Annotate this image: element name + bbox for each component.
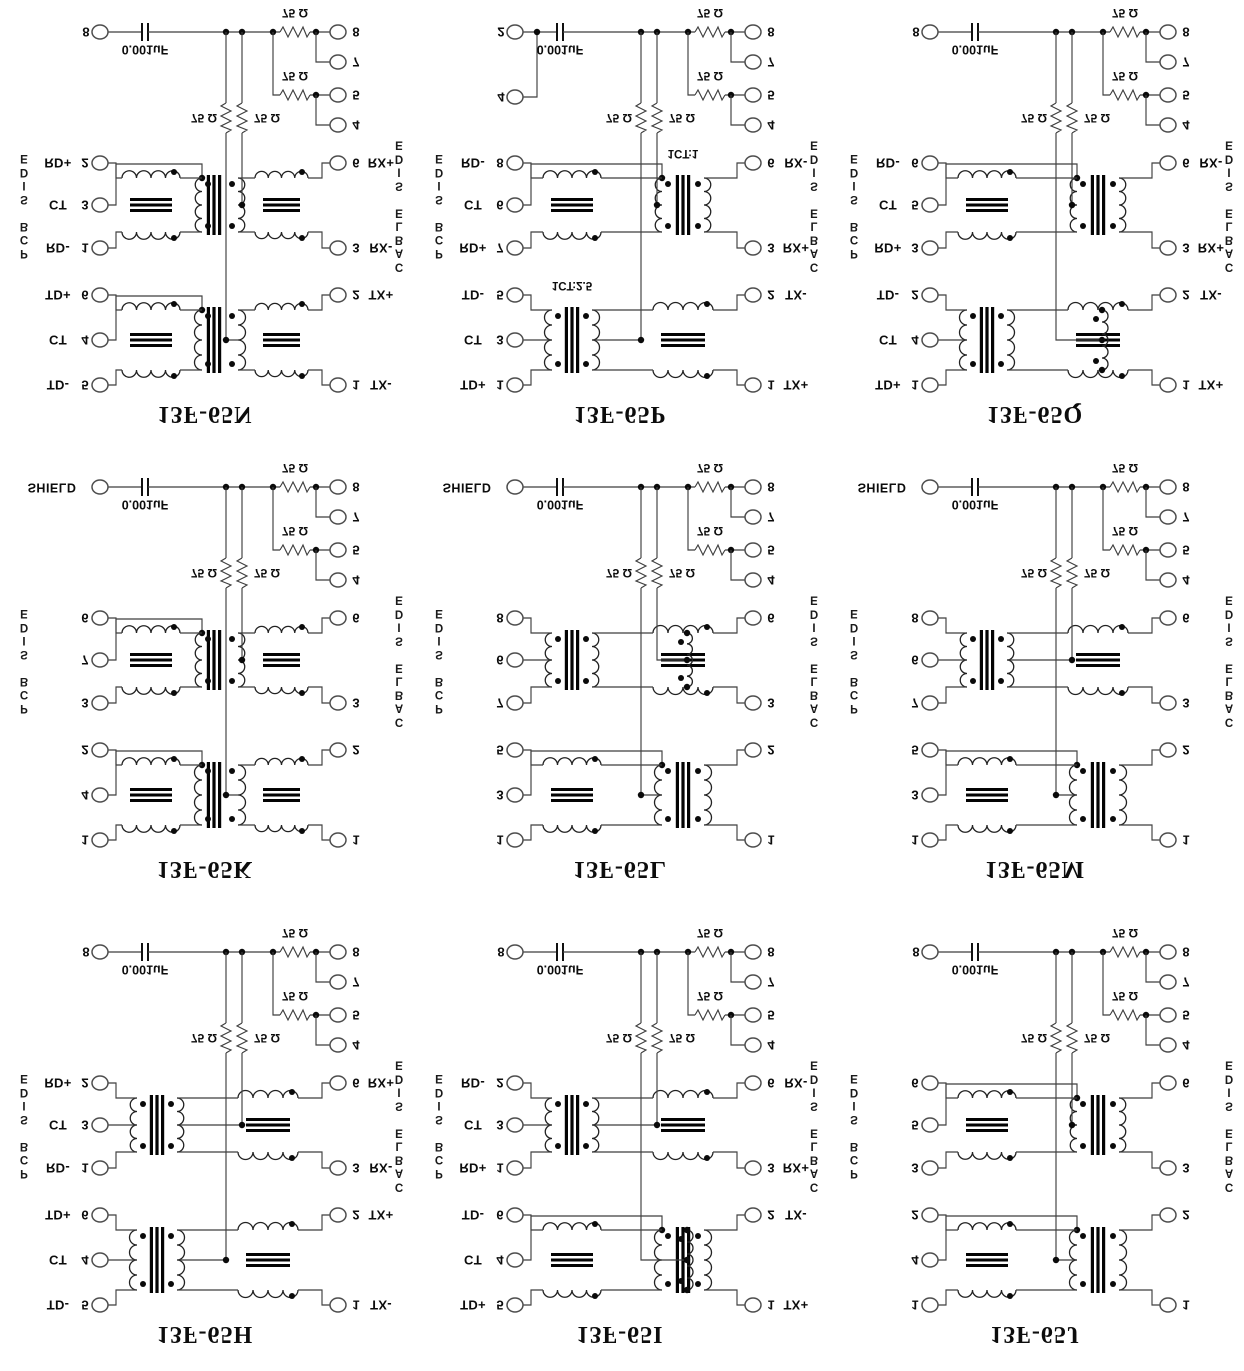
cable-pin-number: 5 bbox=[352, 89, 359, 102]
schematic-cell-13F-65H: 80.001uF75 Ω75 Ω75 Ω75 Ω2RD+3CT1RD-6TD+4… bbox=[0, 920, 415, 1371]
junction-dot bbox=[695, 223, 701, 229]
pcb-pin-label: TD+ bbox=[875, 379, 901, 392]
resistor-value: 75 Ω bbox=[606, 567, 632, 579]
cable-pin-number: 2 bbox=[1182, 289, 1189, 302]
junction-dot bbox=[299, 373, 305, 379]
pin-circle bbox=[922, 156, 938, 170]
pcb-pin-number: 3 bbox=[496, 334, 503, 347]
junction-dot bbox=[534, 29, 540, 35]
pcb-pin-label: RD+ bbox=[44, 1077, 71, 1090]
pin-circle bbox=[92, 743, 108, 757]
cable-side-label: CABLE SIDE bbox=[810, 594, 818, 727]
resistor-value: 75 Ω bbox=[1112, 525, 1138, 537]
cable-pin-number: 8 bbox=[352, 946, 359, 959]
resistor-value: 75 Ω bbox=[1084, 1032, 1110, 1044]
cable-pin-number: 2 bbox=[767, 1209, 774, 1222]
choke-symbol bbox=[238, 1089, 298, 1161]
junction-dot bbox=[1080, 768, 1086, 774]
schematic-cell-13F-65K: SHIELD0.001uF75 Ω75 Ω75 Ω75 Ω67324187546… bbox=[0, 455, 415, 920]
pcb-pin-number: 4 bbox=[81, 789, 88, 802]
cable-pin-number: 3 bbox=[767, 697, 774, 710]
cable-pin-label: TX- bbox=[1200, 289, 1222, 302]
junction-dot bbox=[1080, 1101, 1086, 1107]
pin-circle bbox=[330, 1298, 346, 1312]
junction-dot bbox=[1119, 373, 1125, 379]
pin-circle bbox=[922, 1298, 938, 1312]
pcb-pin-number: 6 bbox=[911, 654, 918, 667]
pcb-pin-label: RD- bbox=[876, 157, 900, 170]
cable-pin-number: 7 bbox=[352, 511, 359, 524]
pin-circle bbox=[1160, 743, 1176, 757]
resistor-value: 75 Ω bbox=[1112, 7, 1138, 19]
pin-circle bbox=[330, 833, 346, 847]
junction-dot bbox=[229, 181, 235, 187]
pcb-pin-number: 3 bbox=[81, 697, 88, 710]
cable-pin-number: 8 bbox=[1182, 946, 1189, 959]
pin-circle bbox=[745, 480, 761, 494]
pin-circle bbox=[1160, 1161, 1176, 1175]
junction-dot bbox=[970, 636, 976, 642]
pin-circle bbox=[1160, 88, 1176, 102]
pin-circle bbox=[1160, 945, 1176, 959]
resistor-value: 75 Ω bbox=[1021, 1032, 1047, 1044]
choke-symbol bbox=[255, 624, 308, 696]
pin-circle bbox=[1160, 696, 1176, 710]
pcb-pin-label: TD+ bbox=[45, 289, 71, 302]
pcb-pin-number: 1 bbox=[81, 242, 88, 255]
resistor-value: 75 Ω bbox=[282, 70, 308, 82]
resistor-symbol bbox=[1110, 1010, 1140, 1020]
pin-circle bbox=[92, 1161, 108, 1175]
pcb-pin-label: CT bbox=[464, 1254, 482, 1267]
cable-pin-number: 6 bbox=[1182, 612, 1189, 625]
pin-circle bbox=[92, 333, 108, 347]
resistor-symbol bbox=[695, 90, 725, 100]
pcb-pin-label: TD- bbox=[462, 289, 485, 302]
pin-circle bbox=[745, 378, 761, 392]
pcb-side-label: PCB SIDE bbox=[435, 1072, 443, 1178]
junction-dot bbox=[555, 361, 561, 367]
junction-dot bbox=[704, 373, 710, 379]
junction-dot bbox=[171, 301, 177, 307]
pin-circle bbox=[330, 241, 346, 255]
pcb-pin-number: 1 bbox=[496, 379, 503, 392]
cable-pin-label: RX+ bbox=[1198, 242, 1225, 255]
junction-dot bbox=[695, 1233, 701, 1239]
junction-dot bbox=[1007, 169, 1013, 175]
pcb-pin-label: RD- bbox=[461, 157, 485, 170]
junction-dot bbox=[684, 1287, 690, 1293]
resistor-value: 75 Ω bbox=[282, 990, 308, 1002]
capacitor-symbol bbox=[972, 943, 978, 961]
junction-dot bbox=[239, 1122, 245, 1128]
pin-circle bbox=[922, 945, 938, 959]
capacitor-symbol bbox=[557, 23, 563, 41]
resistor-symbol bbox=[695, 27, 725, 37]
pcb-side-label: PCB SIDE bbox=[850, 607, 858, 713]
cable-pin-number: 1 bbox=[352, 834, 359, 847]
cable-pin-label: TX- bbox=[785, 289, 807, 302]
pcb-pin-number: 5 bbox=[496, 289, 503, 302]
pin-circle bbox=[92, 1253, 108, 1267]
pcb-pin-number: 3 bbox=[496, 789, 503, 802]
junction-dot bbox=[140, 1281, 146, 1287]
junction-dot bbox=[1053, 1257, 1059, 1263]
pin-circle bbox=[507, 1253, 523, 1267]
resistor-symbol bbox=[280, 482, 310, 492]
pin-circle bbox=[92, 378, 108, 392]
resistor-symbol bbox=[695, 545, 725, 555]
capacitor-value: 0.001uF bbox=[122, 43, 169, 56]
pcb-pin-label: RD- bbox=[46, 242, 70, 255]
cable-pin-number: 8 bbox=[767, 946, 774, 959]
junction-dot bbox=[229, 223, 235, 229]
cable-pin-label: RX+ bbox=[368, 157, 395, 170]
resistor-value: 75 Ω bbox=[697, 927, 723, 939]
cable-pin-number: 6 bbox=[1182, 1077, 1189, 1090]
junction-dot bbox=[555, 1101, 561, 1107]
cable-pin-number: 3 bbox=[1182, 242, 1189, 255]
cable-pin-number: 5 bbox=[1182, 1009, 1189, 1022]
pin-circle bbox=[922, 1118, 938, 1132]
schematic-title: 13F-65N bbox=[158, 402, 253, 426]
cable-pin-number: 6 bbox=[352, 612, 359, 625]
transformer-symbol bbox=[960, 630, 1014, 690]
junction-dot bbox=[684, 684, 690, 690]
choke-symbol bbox=[122, 624, 180, 696]
pin-circle bbox=[1160, 118, 1176, 132]
junction-dot bbox=[998, 361, 1004, 367]
cable-pin-number: 3 bbox=[1182, 697, 1189, 710]
pin-circle bbox=[330, 1008, 346, 1022]
junction-dot bbox=[1007, 1089, 1013, 1095]
junction-dot bbox=[1099, 337, 1105, 343]
resistor-symbol bbox=[1067, 1023, 1077, 1053]
junction-dot bbox=[140, 1233, 146, 1239]
cable-pin-number: 6 bbox=[767, 1077, 774, 1090]
shield-pin-label: 8 bbox=[82, 946, 89, 959]
pcb-pin-number: 5 bbox=[81, 379, 88, 392]
resistor-value: 75 Ω bbox=[697, 990, 723, 1002]
choke-symbol bbox=[238, 1221, 298, 1299]
pin-circle bbox=[92, 1208, 108, 1222]
pin-circle bbox=[330, 543, 346, 557]
schematic-cell-13F-65M: SHIELD0.001uF75 Ω75 Ω75 Ω75 Ω86753187546… bbox=[830, 455, 1244, 920]
cable-pin-number: 5 bbox=[767, 89, 774, 102]
pin-circle bbox=[745, 88, 761, 102]
cable-pin-number: 8 bbox=[767, 26, 774, 39]
transformer-symbol bbox=[195, 630, 245, 690]
cable-pin-number: 7 bbox=[352, 976, 359, 989]
pcb-pin-label: TD- bbox=[47, 379, 70, 392]
junction-dot bbox=[171, 169, 177, 175]
pcb-pin-label: RD+ bbox=[459, 242, 486, 255]
capacitor-value: 0.001uF bbox=[537, 963, 584, 976]
choke-symbol bbox=[958, 756, 1016, 834]
pin-circle bbox=[507, 1076, 523, 1090]
junction-dot bbox=[1007, 1155, 1013, 1161]
transformer-symbol bbox=[545, 307, 600, 373]
capacitor-symbol bbox=[557, 478, 563, 496]
pin-circle bbox=[922, 480, 938, 494]
pin-circle bbox=[330, 510, 346, 524]
resistor-symbol bbox=[237, 103, 247, 133]
junction-dot bbox=[223, 1257, 229, 1263]
cable-pin-number: 3 bbox=[1182, 1162, 1189, 1175]
resistor-symbol bbox=[636, 1023, 646, 1053]
cable-pin-number: 7 bbox=[1182, 976, 1189, 989]
schematic-title: 13F-65Q bbox=[987, 402, 1083, 426]
pin-circle bbox=[92, 611, 108, 625]
transformer-symbol bbox=[1070, 1227, 1127, 1293]
junction-dot bbox=[583, 636, 589, 642]
junction-dot bbox=[1093, 358, 1099, 364]
pcb-pin-number: 1 bbox=[911, 1299, 918, 1312]
pcb-side-label: PCB SIDE bbox=[20, 1072, 28, 1178]
junction-dot bbox=[205, 313, 211, 319]
cable-pin-label: TX- bbox=[370, 379, 392, 392]
resistor-value: 75 Ω bbox=[1112, 990, 1138, 1002]
pin-circle bbox=[745, 1076, 761, 1090]
pin-circle bbox=[507, 288, 523, 302]
resistor-value: 75 Ω bbox=[606, 112, 632, 124]
pin-circle bbox=[922, 1161, 938, 1175]
cable-pin-label: TX+ bbox=[1198, 379, 1223, 392]
transformer-symbol bbox=[130, 1095, 184, 1155]
junction-dot bbox=[289, 1221, 295, 1227]
cable-pin-number: 6 bbox=[352, 1077, 359, 1090]
pcb-pin-number: 3 bbox=[496, 1119, 503, 1132]
pin-circle bbox=[745, 696, 761, 710]
choke-symbol bbox=[958, 169, 1016, 241]
transformer-symbol bbox=[655, 762, 712, 828]
junction-dot bbox=[1119, 301, 1125, 307]
resistor-symbol bbox=[695, 947, 725, 957]
junction-dot bbox=[592, 828, 598, 834]
pin-circle bbox=[507, 156, 523, 170]
pin-circle bbox=[922, 788, 938, 802]
cable-pin-label: RX+ bbox=[368, 1077, 395, 1090]
pcb-pin-number: 1 bbox=[911, 834, 918, 847]
junction-dot bbox=[229, 361, 235, 367]
pcb-pin-number: 6 bbox=[496, 1209, 503, 1222]
pcb-pin-label: CT bbox=[49, 1254, 67, 1267]
choke-symbol bbox=[653, 301, 713, 379]
cable-pin-number: 6 bbox=[767, 157, 774, 170]
pin-circle bbox=[330, 743, 346, 757]
pin-circle bbox=[745, 25, 761, 39]
schematic-title: 13F-65J bbox=[990, 1322, 1080, 1346]
pcb-pin-label: RD+ bbox=[874, 242, 901, 255]
junction-dot bbox=[1069, 1122, 1075, 1128]
junction-dot bbox=[289, 1089, 295, 1095]
schematic-cell-13F-65Q: 80.001uF75 Ω75 Ω75 Ω75 Ω6RD-5CT3RD+2TD-4… bbox=[830, 0, 1244, 455]
pin-circle bbox=[1160, 1008, 1176, 1022]
junction-dot bbox=[171, 624, 177, 630]
junction-dot bbox=[998, 313, 1004, 319]
pcb-pin-number: 8 bbox=[911, 612, 918, 625]
pin-circle bbox=[507, 611, 523, 625]
junction-dot bbox=[665, 768, 671, 774]
cable-pin-number: 8 bbox=[352, 26, 359, 39]
schematic-cell-13F-65L: SHIELD0.001uF75 Ω75 Ω75 Ω75 Ω86753187546… bbox=[415, 455, 830, 920]
resistor-value: 75 Ω bbox=[254, 112, 280, 124]
pin-circle bbox=[507, 1298, 523, 1312]
resistor-symbol bbox=[1051, 558, 1061, 588]
cable-side-label: CABLE SIDE bbox=[810, 1059, 818, 1192]
junction-dot bbox=[592, 1221, 598, 1227]
cable-pin-number: 5 bbox=[767, 544, 774, 557]
capacitor-value: 0.001uF bbox=[537, 43, 584, 56]
pcb-side-label: PCB SIDE bbox=[850, 152, 858, 258]
junction-dot bbox=[638, 337, 644, 343]
schematic-title: 13F-65H bbox=[157, 1322, 253, 1346]
junction-dot bbox=[205, 678, 211, 684]
cable-pin-number: 3 bbox=[767, 1162, 774, 1175]
cable-pin-number: 5 bbox=[1182, 89, 1189, 102]
resistor-value: 75 Ω bbox=[669, 567, 695, 579]
junction-dot bbox=[1080, 223, 1086, 229]
pin-circle bbox=[507, 198, 523, 212]
pin-circle bbox=[745, 1298, 761, 1312]
cable-pin-number: 4 bbox=[352, 119, 359, 132]
cable-pin-label: TX+ bbox=[783, 1299, 808, 1312]
pin-circle bbox=[92, 1298, 108, 1312]
junction-dot bbox=[665, 816, 671, 822]
pcb-pin-number: 2 bbox=[911, 1209, 918, 1222]
junction-dot bbox=[1110, 1101, 1116, 1107]
junction-dot bbox=[654, 202, 660, 208]
pin-circle bbox=[745, 1161, 761, 1175]
junction-dot bbox=[555, 636, 561, 642]
shield-pin-label: SHIELD bbox=[858, 481, 907, 494]
cable-side-label: CABLE SIDE bbox=[395, 594, 403, 727]
pcb-pin-label: TD- bbox=[462, 1209, 485, 1222]
pin-circle bbox=[922, 833, 938, 847]
junction-dot bbox=[1080, 181, 1086, 187]
pin-circle bbox=[92, 480, 108, 494]
pcb-side-label: PCB SIDE bbox=[850, 1072, 858, 1178]
cable-pin-number: 3 bbox=[352, 1162, 359, 1175]
resistor-value: 75 Ω bbox=[282, 927, 308, 939]
pcb-pin-label: CT bbox=[464, 1119, 482, 1132]
pcb-pin-label: CT bbox=[49, 1119, 67, 1132]
pcb-pin-number: 6 bbox=[81, 1209, 88, 1222]
resistor-symbol bbox=[1067, 103, 1077, 133]
pcb-pin-number: 5 bbox=[911, 1119, 918, 1132]
pcb-pin-number: 4 bbox=[81, 334, 88, 347]
cable-pin-number: 4 bbox=[1182, 574, 1189, 587]
junction-dot bbox=[583, 678, 589, 684]
junction-dot bbox=[205, 181, 211, 187]
junction-dot bbox=[678, 639, 684, 645]
shield-pin-label: SHIELD bbox=[443, 481, 492, 494]
pin-circle bbox=[507, 1118, 523, 1132]
junction-dot bbox=[998, 678, 1004, 684]
pcb-pin-number: 2 bbox=[81, 744, 88, 757]
junction-dot bbox=[1110, 1281, 1116, 1287]
junction-dot bbox=[583, 1143, 589, 1149]
pcb-pin-label: TD+ bbox=[460, 1299, 486, 1312]
pin-circle bbox=[745, 241, 761, 255]
pin-circle bbox=[330, 378, 346, 392]
junction-dot bbox=[970, 361, 976, 367]
pcb-pin-number: 5 bbox=[911, 744, 918, 757]
cable-pin-number: 5 bbox=[352, 1009, 359, 1022]
pcb-side-label: PCB SIDE bbox=[20, 607, 28, 713]
junction-dot bbox=[1110, 223, 1116, 229]
schematic-title: 13F-65P bbox=[574, 402, 666, 426]
cable-pin-number: 2 bbox=[1182, 1209, 1189, 1222]
pin-circle bbox=[745, 543, 761, 557]
capacitor-symbol bbox=[142, 23, 148, 41]
junction-dot bbox=[168, 1233, 174, 1239]
cable-pin-label: TX+ bbox=[368, 1209, 393, 1222]
junction-dot bbox=[704, 301, 710, 307]
resistor-value: 75 Ω bbox=[1021, 567, 1047, 579]
pin-circle bbox=[922, 288, 938, 302]
transformer-symbol bbox=[1070, 1095, 1126, 1155]
junction-dot bbox=[684, 1227, 690, 1233]
resistor-value: 75 Ω bbox=[191, 1032, 217, 1044]
pcb-pin-label: TD+ bbox=[460, 379, 486, 392]
resistor-symbol bbox=[1110, 545, 1140, 555]
choke-symbol bbox=[653, 1089, 713, 1161]
pin-circle bbox=[922, 1208, 938, 1222]
junction-dot bbox=[1099, 307, 1105, 313]
pin-circle bbox=[745, 118, 761, 132]
capacitor-symbol bbox=[972, 478, 978, 496]
datasheet-page: 80.001uF75 Ω75 Ω75 Ω75 Ω2RD+3CT1RD-6TD+4… bbox=[0, 0, 1244, 1371]
junction-dot bbox=[1007, 1221, 1013, 1227]
pcb-pin-number: 6 bbox=[496, 199, 503, 212]
cable-pin-number: 2 bbox=[767, 744, 774, 757]
junction-dot bbox=[583, 361, 589, 367]
pcb-pin-number: 8 bbox=[496, 612, 503, 625]
pin-circle bbox=[92, 288, 108, 302]
junction-dot bbox=[704, 690, 710, 696]
pin-circle bbox=[507, 333, 523, 347]
pin-circle bbox=[922, 25, 938, 39]
cable-pin-number: 2 bbox=[767, 289, 774, 302]
pcb-pin-number: 6 bbox=[81, 612, 88, 625]
shield-pin-label: 8 bbox=[912, 26, 919, 39]
pin-circle bbox=[1160, 975, 1176, 989]
junction-dot bbox=[299, 624, 305, 630]
junction-dot bbox=[970, 678, 976, 684]
pin-circle bbox=[922, 743, 938, 757]
pin-circle bbox=[1160, 833, 1176, 847]
junction-dot bbox=[1099, 367, 1105, 373]
cable-side-label: CABLE SIDE bbox=[810, 139, 818, 272]
shield-pin-label: SHIELD bbox=[28, 481, 77, 494]
junction-dot bbox=[171, 690, 177, 696]
capacitor-value: 0.001uF bbox=[952, 43, 999, 56]
cable-pin-number: 8 bbox=[1182, 26, 1189, 39]
pin-circle bbox=[1160, 543, 1176, 557]
pin-circle bbox=[1160, 241, 1176, 255]
junction-dot bbox=[299, 756, 305, 762]
pin-circle bbox=[507, 945, 523, 959]
pin-circle bbox=[922, 198, 938, 212]
pin-circle bbox=[1160, 611, 1176, 625]
pcb-pin-number: 3 bbox=[81, 199, 88, 212]
choke-symbol bbox=[122, 756, 180, 834]
junction-dot bbox=[299, 169, 305, 175]
pcb-pin-number: 1 bbox=[496, 1162, 503, 1175]
junction-dot bbox=[229, 678, 235, 684]
pin-circle bbox=[92, 156, 108, 170]
